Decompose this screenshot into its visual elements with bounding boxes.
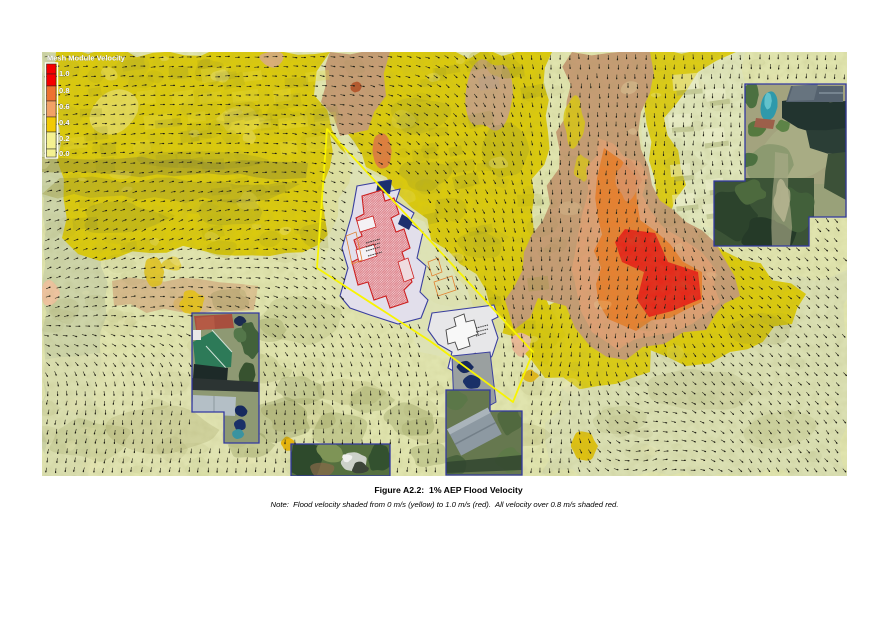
svg-text:0.2: 0.2 (59, 134, 70, 143)
svg-text:0.4: 0.4 (59, 118, 70, 127)
svg-text:0.0: 0.0 (59, 149, 70, 158)
svg-text:Mesh Module Velocity: Mesh Module Velocity (47, 54, 126, 63)
svg-text:0.6: 0.6 (59, 102, 70, 111)
svg-text:1.0: 1.0 (59, 69, 70, 78)
svg-text:0.8: 0.8 (59, 86, 70, 95)
